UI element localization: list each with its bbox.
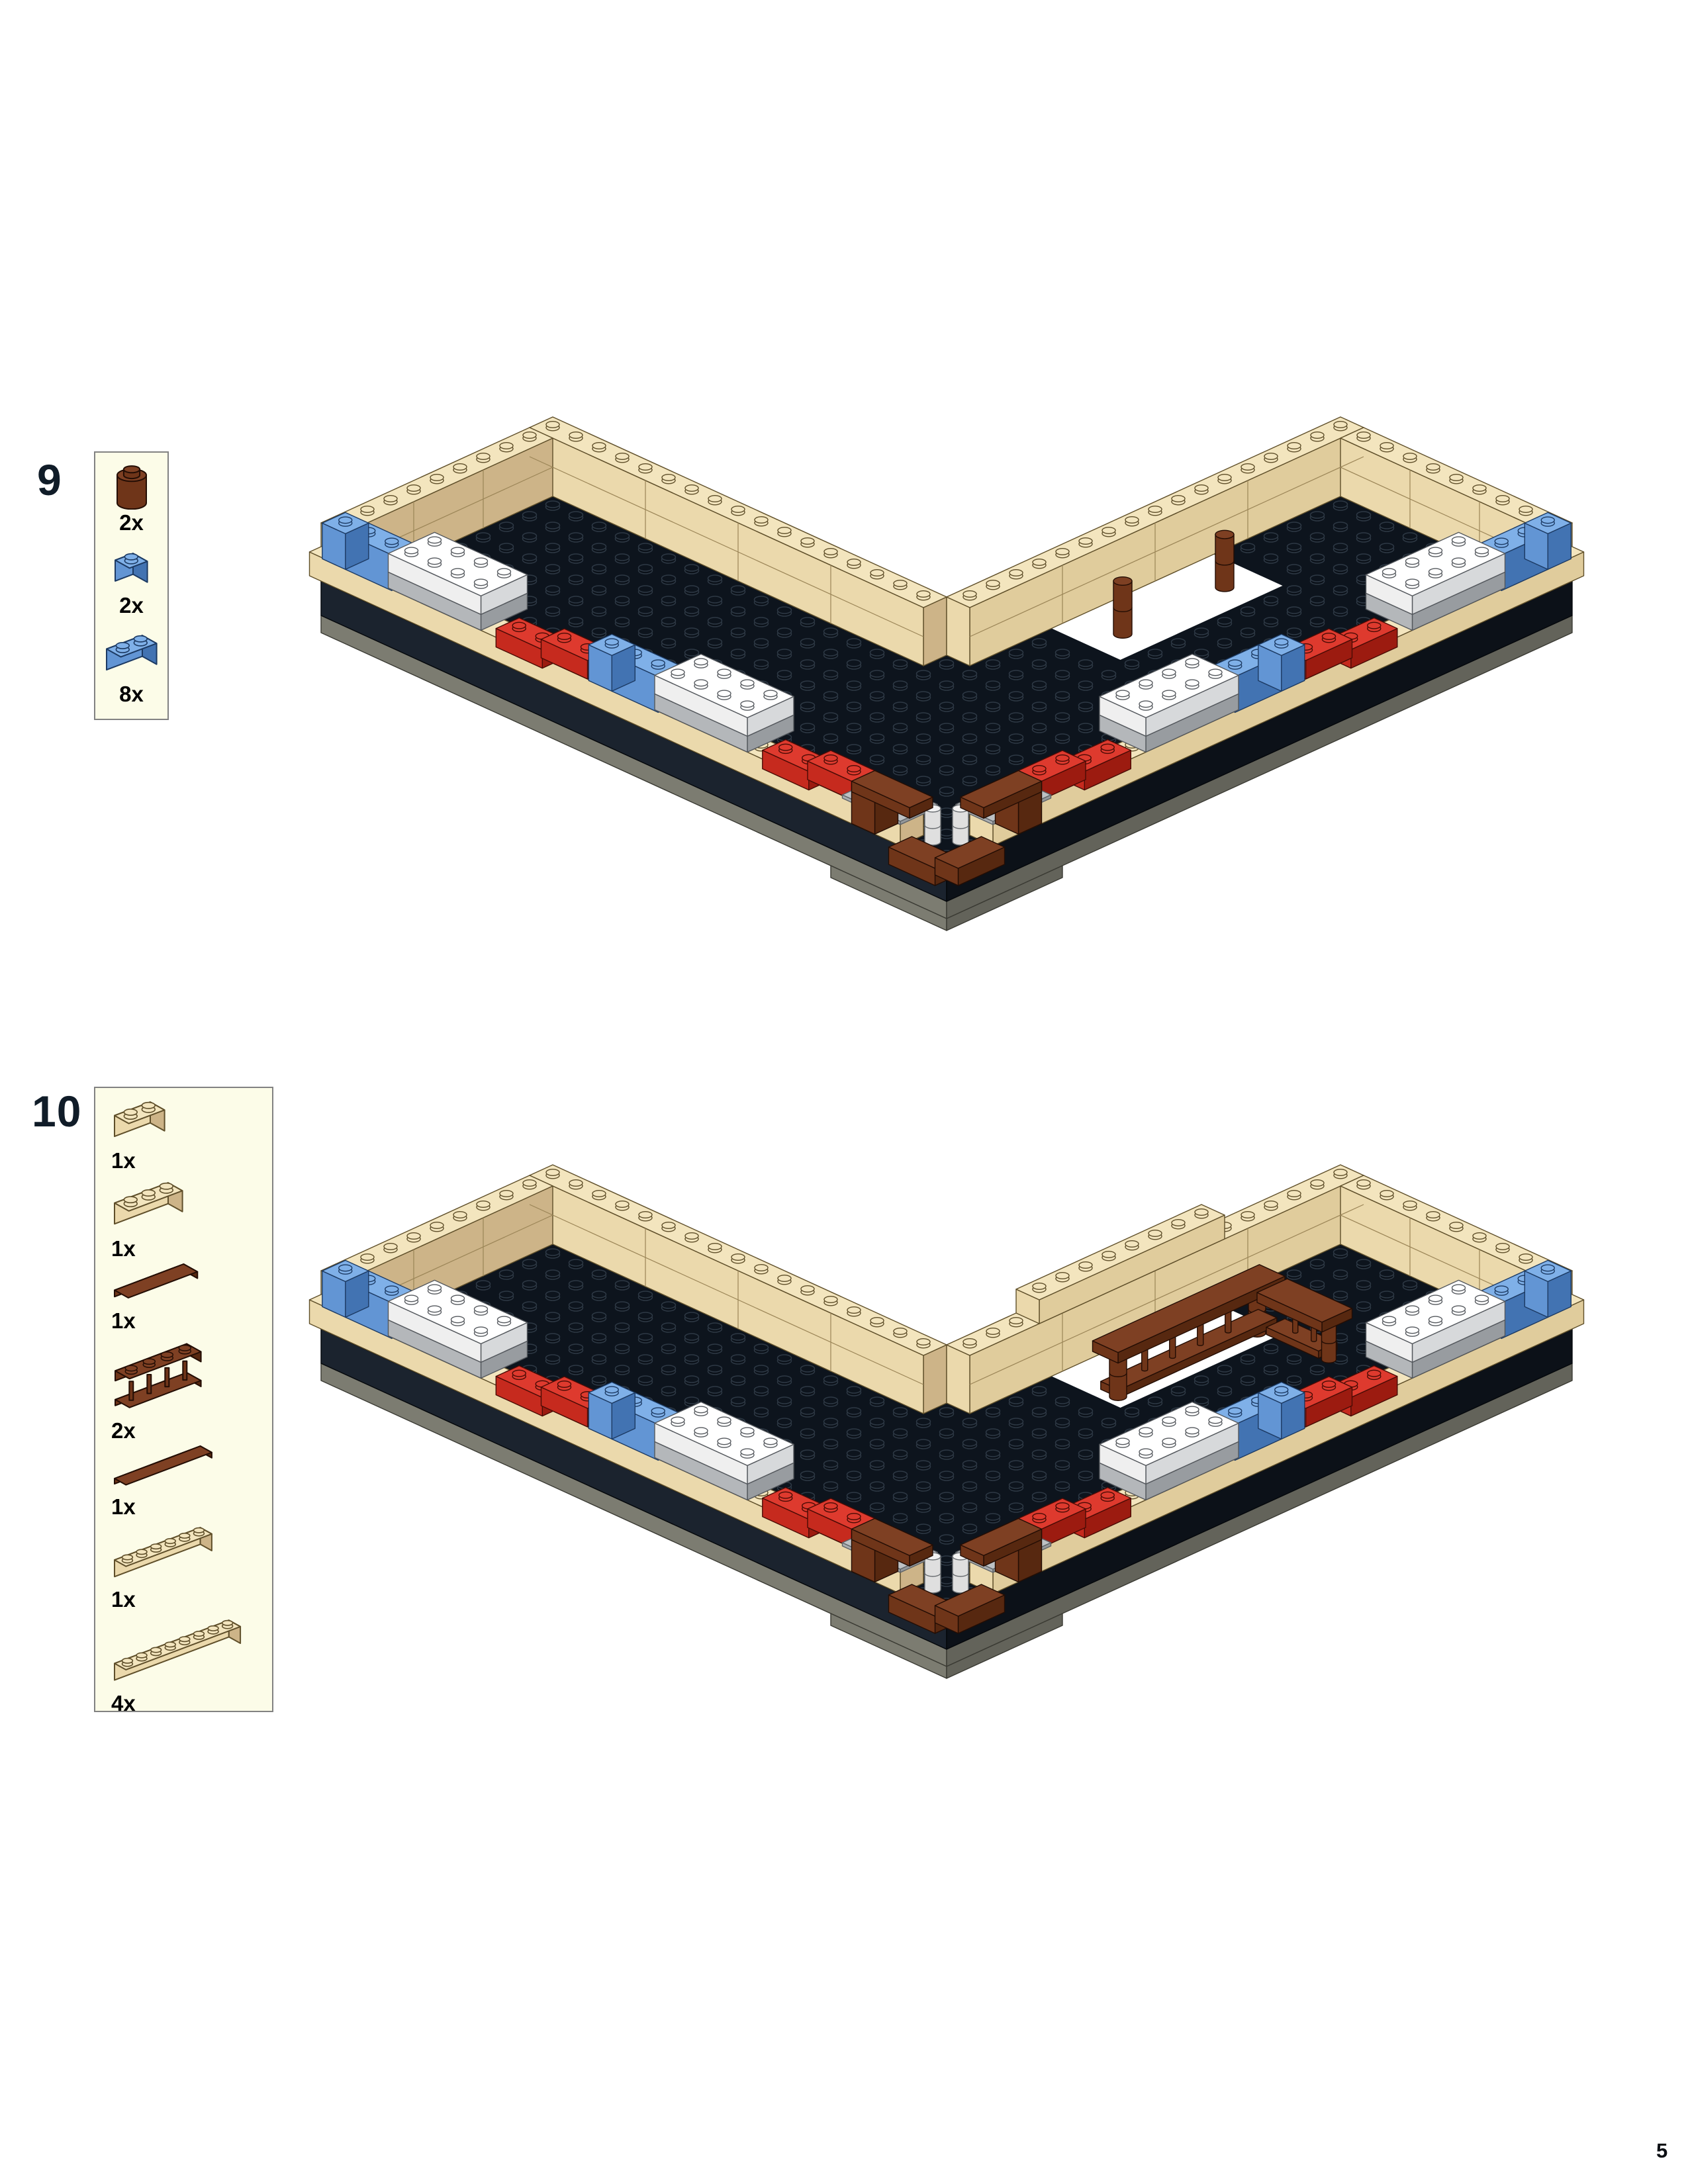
part-quantity: 1x [111,1237,136,1261]
part-row-tan-1x6-brick: 1x [95,1519,215,1612]
part-quantity: 2x [111,1419,136,1443]
part-icon-tan-1x2-brick [111,1092,168,1148]
part-icon-tan-1x3-brick [111,1173,186,1235]
part-row-brown-1x4-fence: 2x [95,1333,205,1443]
step-9-parts-callout: 2x2x8x [94,451,169,720]
part-row-blue-1x2-brick: 8x [103,625,160,706]
part-quantity: 1x [111,1588,136,1612]
part-icon-tan-1x8-brick [111,1612,244,1690]
part-quantity: 8x [119,682,144,706]
part-icon-blue-1x2-brick [103,625,160,681]
instruction-page: 9 2x2x8x 10 1x1x1x2x1x1x4x 5 [0,0,1688,2184]
part-quantity: 1x [111,1309,136,1333]
page-number: 5 [1656,2139,1667,2163]
part-icon-tan-1x6-brick [111,1519,215,1586]
part-quantity: 4x [111,1692,136,1715]
part-quantity: 2x [119,511,144,535]
step-10-number: 10 [32,1089,81,1133]
part-icon-blue-1x1-brick [112,543,151,592]
part-quantity: 1x [111,1149,136,1173]
part-quantity: 2x [119,594,144,617]
part-row-tan-1x8-brick: 4x [95,1612,244,1715]
part-icon-brown-1x6-tile [111,1443,215,1494]
part-row-blue-1x1-brick: 2x [112,543,151,617]
part-row-tan-1x2-brick: 1x [95,1092,168,1173]
part-icon-brown-1x4-tile [111,1261,201,1308]
part-row-brown-1x6-tile: 1x [95,1443,215,1519]
part-row-brown-1x1-round-brick: 2x [112,465,152,535]
part-row-tan-1x3-brick: 1x [95,1173,186,1261]
part-quantity: 1x [111,1495,136,1519]
step-9-model-illustration [232,361,1655,956]
part-row-brown-1x4-tile: 1x [95,1261,201,1333]
step-10-model-illustration [232,1109,1655,1704]
part-icon-brown-1x4-fence [111,1333,205,1418]
step-9-number: 9 [37,458,62,502]
part-icon-brown-1x1-round-brick [112,465,152,510]
